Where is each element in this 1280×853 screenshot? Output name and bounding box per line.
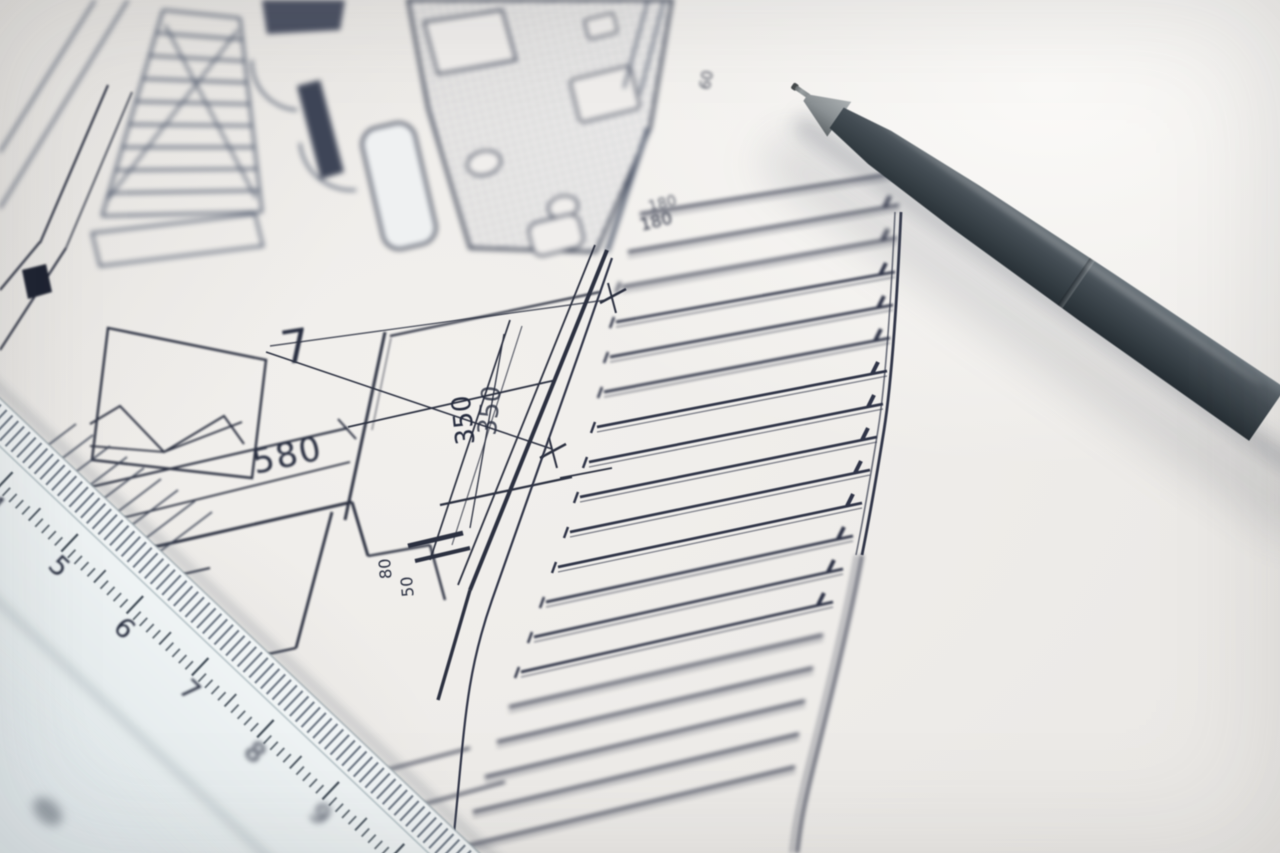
wall-poche xyxy=(262,0,345,34)
bed-fold-marks xyxy=(90,422,242,452)
deck-board xyxy=(521,602,833,672)
deck-board-cap xyxy=(574,492,578,503)
deck-board xyxy=(570,470,870,532)
bed-fold-marks xyxy=(90,406,244,452)
dim-label-350b: 350 xyxy=(473,384,508,437)
deck-board xyxy=(558,503,862,567)
deck-edge xyxy=(791,555,856,853)
deck-board-cap xyxy=(610,317,614,328)
stair-stringer xyxy=(240,18,262,212)
dim-label-580: 580 xyxy=(249,428,327,482)
stair-direction-line xyxy=(107,30,238,200)
dim-label-50: 50 xyxy=(397,576,418,598)
staircase xyxy=(102,10,262,216)
wall-line xyxy=(352,502,368,556)
sight-line xyxy=(270,300,606,346)
pen-ring xyxy=(1057,257,1095,309)
deck-board-cap xyxy=(515,667,519,678)
dim-label-80: 80 xyxy=(375,558,396,580)
wall-line xyxy=(438,590,470,700)
deck-board xyxy=(462,767,795,847)
deck-board-edge xyxy=(462,772,795,852)
deck-board-edge xyxy=(546,541,853,607)
plan-sharp: 350 350 80 50 xyxy=(266,245,626,700)
deck-board-edge xyxy=(580,442,877,502)
deck-joist-line xyxy=(452,258,612,853)
stair-tread xyxy=(163,10,240,18)
wall-line xyxy=(40,85,108,243)
deck-board-cap xyxy=(540,597,544,608)
dim-line xyxy=(560,468,612,478)
deck-board xyxy=(546,536,853,602)
stair-tread xyxy=(116,169,258,170)
photo-stage: 180 180 60 xyxy=(0,0,1280,853)
deck-board xyxy=(509,635,823,707)
stair-tread xyxy=(109,190,260,193)
deck-board-cap xyxy=(598,387,602,398)
deck-board-edge xyxy=(589,409,883,467)
stair-tread xyxy=(136,102,250,105)
deck-board-edge xyxy=(616,277,895,327)
plan-top-blurry xyxy=(0,0,672,266)
deck-board-cap xyxy=(604,352,608,363)
bed-outline xyxy=(92,328,266,478)
deck-board-edge xyxy=(521,607,833,677)
deck-board xyxy=(589,404,883,462)
deck-board xyxy=(534,569,843,637)
deck-board xyxy=(580,437,877,497)
deck-board-edge xyxy=(610,310,893,362)
stair-tread xyxy=(149,56,244,61)
wall-poche xyxy=(297,80,344,179)
hatch-line xyxy=(154,512,212,556)
deck-board-cap xyxy=(591,422,595,433)
wall-line xyxy=(296,512,332,648)
deck-board-cap xyxy=(528,632,532,643)
deck-board-edge xyxy=(534,574,843,642)
wall-line xyxy=(0,0,128,208)
stair-landing xyxy=(92,214,263,266)
stair-stringer xyxy=(102,10,163,216)
deck-board-edge xyxy=(570,475,870,537)
bathtub xyxy=(359,120,440,253)
stair-tread xyxy=(129,124,252,125)
stair-direction-line xyxy=(165,25,256,198)
deck-board-cap xyxy=(564,527,568,538)
deck-board-edge xyxy=(558,508,862,572)
deck-edge xyxy=(797,555,862,853)
deck-board-cap xyxy=(552,562,556,573)
deck-board-cap xyxy=(583,457,587,468)
column-black-square xyxy=(22,264,52,299)
wall-poche-bar xyxy=(415,548,470,561)
wall-line xyxy=(368,545,430,556)
deck-board xyxy=(597,371,887,427)
blueprint-drawing: 180 180 60 xyxy=(0,0,1280,853)
dim-label-60: 60 xyxy=(696,69,717,91)
wall-line xyxy=(390,292,600,336)
deck-board xyxy=(610,305,893,357)
wall-line xyxy=(0,248,66,350)
deck-boards-lower xyxy=(515,527,853,678)
door-swing-arc xyxy=(252,60,297,110)
